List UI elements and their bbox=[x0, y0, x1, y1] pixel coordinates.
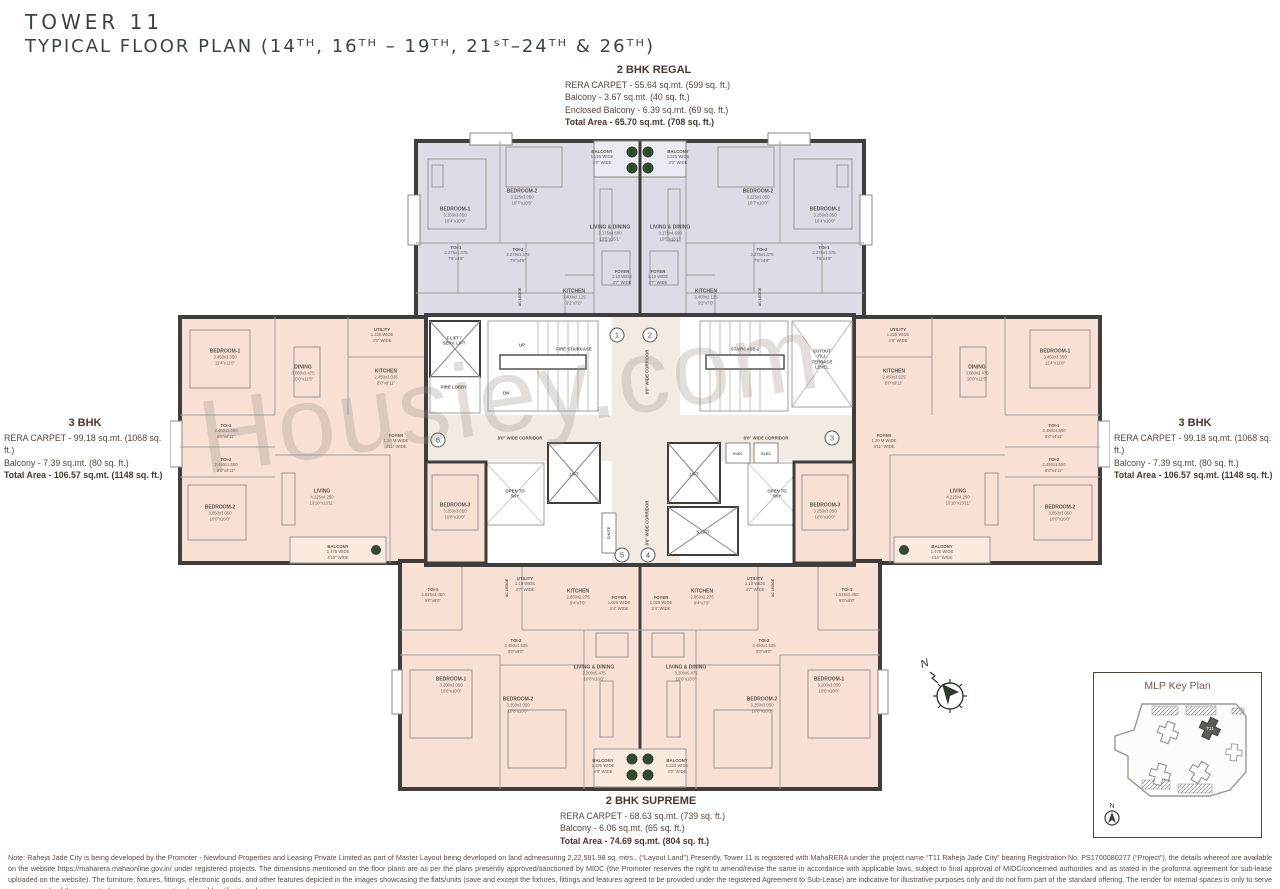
room-name: FOYER bbox=[608, 595, 631, 600]
room-dimensions: 3.250x3.050 10'8"x10'0" bbox=[747, 703, 778, 714]
room-dimensions: 3.250x3.050 10'8"x10'0" bbox=[503, 703, 534, 714]
room-dimensions: 3.450x3.350 11'4"x11'0" bbox=[210, 355, 241, 366]
room-dimensions: 3.150x3.050 10'4"x10'0" bbox=[810, 213, 841, 224]
room-dimensions: 3.060x3.475 10'0"x11'5" bbox=[965, 371, 988, 382]
room-name: 8'0" WIDE CORRIDOR bbox=[644, 350, 649, 395]
room-dimensions: 1.20 M WIDE 3'11" WIDE bbox=[872, 438, 897, 449]
room-name: LIVING bbox=[946, 489, 971, 495]
room-label: TOI-22.275x1.375 7'6"x4'6" bbox=[750, 247, 773, 263]
room-dimensions: 1.10 WIDE 3'7" WIDE bbox=[648, 274, 668, 285]
disclaimer-note: Note: Raheja Jade City is being develope… bbox=[8, 852, 1272, 889]
room-name: FOYER bbox=[872, 433, 897, 438]
room-dimensions: 2.275x1.375 7'6"x4'6" bbox=[750, 252, 773, 263]
spec-total: Total Area - 106.57 sq.mt. (1148 sq. ft.… bbox=[4, 469, 166, 482]
room-name: BEDROOM-2 bbox=[507, 189, 538, 195]
room-dimensions: 2.450x3.025 8'0"x9'11" bbox=[882, 375, 905, 386]
room-name: KITCHEN bbox=[694, 289, 717, 295]
room-name: LIVING & DINING bbox=[574, 665, 615, 671]
room-name: BEDROOM-1 bbox=[210, 349, 241, 355]
unit-spec-supreme: 2 BHK SUPREME RERA CARPET - 68.63 sq.mt.… bbox=[560, 795, 742, 847]
room-dimensions: 1.525x2.450 5'0"x8'0" bbox=[421, 592, 444, 603]
room-dimensions: 3.050x3.050 10'0"x10'0" bbox=[1045, 511, 1076, 522]
room-label: LIVING4.225x4.250 13'10"x13'11" bbox=[310, 489, 335, 506]
page-title: TOWER 11 bbox=[25, 10, 163, 34]
room-name: TOI-1 bbox=[835, 587, 858, 592]
room-dimensions: 1.475 WIDE 4'10" WIDE bbox=[327, 549, 350, 560]
room-label: BEDROOM-23.225x3.050 10'7"x10'0" bbox=[743, 189, 774, 206]
room-name: AC LEDGE bbox=[771, 579, 775, 598]
room-label: BEDROOM-13.150x3.050 10'4"x10'0" bbox=[810, 207, 841, 224]
key-plan-map: T11 N bbox=[1094, 692, 1260, 830]
room-dimensions: 1.225 WIDE 4'0" WIDE bbox=[887, 332, 910, 343]
room-name: 8'0" WIDE CORRIDOR bbox=[644, 501, 649, 546]
room-name: BEDROOM-2 bbox=[503, 697, 534, 703]
room-dimensions: 1.525x2.450 5'0"x8'0" bbox=[835, 592, 858, 603]
room-name: TOI-1 bbox=[812, 245, 835, 250]
room-name: KITCHEN bbox=[562, 289, 585, 295]
room-label: TOI-12.450x1.500 8'0"x4'11" bbox=[1042, 423, 1065, 439]
plan-label: S.LIFT bbox=[696, 529, 709, 534]
room-dimensions: 1.225 WIDE 4'0" WIDE bbox=[592, 763, 615, 774]
room-name: 8'0" WIDE CORRIDOR bbox=[744, 435, 789, 440]
room-name: UTILITY bbox=[887, 327, 910, 332]
room-label: BEDROOM-13.450x3.350 11'4"x11'0" bbox=[210, 349, 241, 366]
room-label: FOYER1.20 M WIDE 3'11" WIDE bbox=[384, 433, 409, 449]
room-name: KITCHEN bbox=[566, 589, 589, 595]
plan-label: FIRE LOBBY bbox=[441, 384, 467, 389]
room-name: BEDROOM-1 bbox=[436, 677, 467, 683]
room-dimensions: 2.450x1.525 8'0"x5'0" bbox=[504, 643, 527, 654]
corridor-node-number: 5 bbox=[615, 548, 630, 563]
room-dimensions: 3.175x4.600 10'5"x15'1" bbox=[650, 231, 691, 242]
room-name: DN bbox=[503, 390, 509, 395]
room-dimensions: 2.850x2.275 9'4"x7'5" bbox=[566, 595, 589, 606]
room-dimensions: 1.225 WIDE 4'0" WIDE bbox=[666, 763, 689, 774]
corridor-node-number: 6 bbox=[431, 433, 446, 448]
room-name: LIVING bbox=[310, 489, 335, 495]
room-name: LIFT bbox=[689, 471, 698, 476]
room-name: ELEC bbox=[733, 452, 743, 456]
room-name: FIRE STAIRCASE bbox=[556, 346, 592, 351]
room-name: BEDROOM-1 bbox=[810, 207, 841, 213]
room-dimensions: 3.250x3.050 10'8"x10'0" bbox=[440, 509, 471, 520]
room-dimensions: 3.400x2.125 9'2"x7'0" bbox=[694, 295, 717, 306]
room-name: AC LEDGE bbox=[505, 579, 509, 598]
spec-line: RERA CARPET - 99.18 sq.mt. (1068 sq. ft.… bbox=[1114, 432, 1276, 457]
key-plan-compass-n: N bbox=[1109, 803, 1114, 810]
room-dimensions: 2.850x2.275 9'4"x7'5" bbox=[690, 595, 713, 606]
spec-line: Balcony - 7.39 sq.mt. (80 sq. ft.) bbox=[4, 457, 166, 470]
room-dimensions: 1.225 WIDE 4'0" WIDE bbox=[591, 154, 614, 165]
room-dimensions: 3.200x3.050 10'6"x10'0" bbox=[814, 683, 845, 694]
room-label: LIVING & DINING3.175x4.600 10'5"x15'1" bbox=[590, 225, 631, 242]
room-name: TOI-2 bbox=[506, 247, 529, 252]
room-label: TOI-22.275x1.375 7'6"x4'6" bbox=[506, 247, 529, 263]
room-name: OPEN TO SKY bbox=[767, 489, 786, 500]
room-name: BEDROOM-2 bbox=[743, 189, 774, 195]
room-name: TOI-1 bbox=[421, 587, 444, 592]
plan-label: AC LEDGE bbox=[771, 579, 775, 598]
room-name: FIRE LOBBY bbox=[441, 384, 467, 389]
room-label: BEDROOM-23.250x3.050 10'8"x10'0" bbox=[747, 697, 778, 714]
plan-label: AC LEDGE bbox=[518, 288, 522, 307]
room-name: ELEC bbox=[761, 452, 771, 456]
room-label: BEDROOM-23.050x3.050 10'0"x10'0" bbox=[205, 505, 236, 522]
mlp-key-plan: MLP Key Plan T11 N bbox=[1093, 672, 1262, 838]
room-label: KITCHEN3.400x2.125 9'2"x7'0" bbox=[694, 289, 717, 306]
plan-label: OPEN TO SKY bbox=[767, 489, 786, 500]
corridor-node-number: 2 bbox=[643, 328, 658, 343]
room-name: BEDROOM-1 bbox=[440, 207, 471, 213]
room-label: UTILITY1.10 WIDE 3'7" WIDE bbox=[745, 576, 765, 592]
room-name: LIFT bbox=[569, 471, 578, 476]
room-dimensions: 2.275x1.375 7'6"x4'6" bbox=[444, 250, 467, 261]
room-dimensions: 3.225x3.050 10'7"x10'0" bbox=[507, 195, 538, 206]
room-label: BEDROOM-13.150x3.050 10'4"x10'0" bbox=[440, 207, 471, 224]
room-dimensions: 2.450x1.500 8'0"x4'11" bbox=[1042, 428, 1065, 439]
room-label: BEDROOM-13.200x3.050 10'6"x10'0" bbox=[436, 677, 467, 694]
unit-name: 3 BHK bbox=[4, 417, 166, 430]
room-name: F.LIFT / SERV. LIFT bbox=[443, 336, 466, 347]
room-label: BEDROOM-33.250x3.050 10'8"x10'0" bbox=[440, 503, 471, 520]
room-name: BEDROOM-3 bbox=[810, 503, 841, 509]
room-label: LIVING4.225x4.250 13'10"x13'11" bbox=[946, 489, 971, 506]
room-dimensions: 3.200x5.475 10'6"x18'0" bbox=[666, 671, 707, 682]
room-dimensions: 3.175x4.600 10'5"x15'1" bbox=[590, 231, 631, 242]
room-label: TOI-12.450x1.500 8'0"x4'11" bbox=[214, 423, 237, 439]
room-label: KITCHEN2.850x2.275 9'4"x7'5" bbox=[690, 589, 713, 606]
room-label: BALCONY1.475 WIDE 4'10" WIDE bbox=[327, 544, 350, 560]
room-label: FOYER1.025 WIDE 3'4" WIDE bbox=[608, 595, 631, 611]
room-label: LIVING & DINING3.200x5.475 10'6"x18'0" bbox=[574, 665, 615, 682]
plan-label: 8'0" WIDE CORRIDOR bbox=[644, 501, 649, 546]
room-label: UTILITY1.225 WIDE 4'0" WIDE bbox=[887, 327, 910, 343]
plan-label: DN bbox=[503, 390, 509, 395]
room-label: BALCONY1.225 WIDE 4'0" WIDE bbox=[667, 149, 690, 165]
plan-label: 8'0" WIDE CORRIDOR bbox=[644, 350, 649, 395]
plan-label: CHUTE bbox=[607, 527, 611, 539]
room-label: KITCHEN2.450x3.025 8'0"x9'11" bbox=[882, 369, 905, 386]
room-dimensions: 1.10 WIDE 3'7" WIDE bbox=[745, 581, 765, 592]
room-label: BALCONY1.475 WIDE 4'10" WIDE bbox=[931, 544, 954, 560]
corridor-node-number: 4 bbox=[641, 548, 656, 563]
unit-spec-3bhk-right: 3 BHK RERA CARPET - 99.18 sq.mt. (1068 s… bbox=[1114, 417, 1276, 482]
room-name: KITCHEN bbox=[374, 369, 397, 375]
room-label: FOYER1.10 WIDE 3'7" WIDE bbox=[612, 269, 632, 285]
room-name: AC LEDGE bbox=[518, 288, 522, 307]
room-label: UTILITY1.10 WIDE 3'7" WIDE bbox=[515, 576, 535, 592]
room-name: TOI-1 bbox=[1042, 423, 1065, 428]
room-dimensions: 2.450x1.500 8'0"x4'11" bbox=[214, 428, 237, 439]
room-dimensions: 3.225x3.050 10'7"x10'0" bbox=[743, 195, 774, 206]
svg-text:N: N bbox=[919, 657, 931, 671]
plan-label: ELEC bbox=[733, 452, 743, 456]
room-name: OPEN TO SKY bbox=[505, 489, 524, 500]
room-name: BEDROOM-1 bbox=[814, 677, 845, 683]
room-label: DINING3.060x3.475 10'0"x11'5" bbox=[965, 365, 988, 382]
room-label: UTILITY1.225 WIDE 4'0" WIDE bbox=[371, 327, 394, 343]
room-dimensions: 3.450x3.350 11'4"x11'0" bbox=[1040, 355, 1071, 366]
room-name: LIVING & DINING bbox=[590, 225, 631, 231]
tower-t11-label: T11 bbox=[1206, 726, 1214, 731]
plan-label: STAIRCASE-2 bbox=[731, 346, 759, 351]
room-name: S.LIFT bbox=[696, 529, 709, 534]
room-label: LIVING & DINING3.175x4.600 10'5"x15'1" bbox=[650, 225, 691, 242]
room-name: BALCONY bbox=[327, 544, 350, 549]
room-name: FOYER bbox=[648, 269, 668, 274]
plan-label: F.LIFT / SERV. LIFT bbox=[443, 336, 466, 347]
room-label: KITCHEN2.450x3.025 8'0"x9'11" bbox=[374, 369, 397, 386]
spec-line: RERA CARPET - 99.18 sq.mt. (1068 sq. ft.… bbox=[4, 432, 166, 457]
room-name: UP bbox=[519, 342, 525, 347]
spec-line: Balcony - 7.39 sq.mt. (80 sq. ft.) bbox=[1114, 457, 1276, 470]
north-compass-icon: N bbox=[912, 652, 980, 720]
spec-line: RERA CARPET - 68.63 sq.mt. (739 sq. ft.) bbox=[560, 810, 742, 823]
room-name: TOI-1 bbox=[214, 423, 237, 428]
room-label: TOI-12.275x1.375 7'6"x4'6" bbox=[444, 245, 467, 261]
room-dimensions: 1.475 WIDE 4'10" WIDE bbox=[931, 549, 954, 560]
room-dimensions: 3.200x5.475 10'6"x18'0" bbox=[574, 671, 615, 682]
room-dimensions: 1.10 WIDE 3'7" WIDE bbox=[612, 274, 632, 285]
room-label: KITCHEN2.850x2.275 9'4"x7'5" bbox=[566, 589, 589, 606]
room-dimensions: 2.275x1.375 7'6"x4'6" bbox=[812, 250, 835, 261]
spec-line: Enclosed Balcony - 6.39 sq.mt. (69 sq. f… bbox=[565, 104, 743, 117]
plan-label: FIRE STAIRCASE bbox=[556, 346, 592, 351]
room-label: BEDROOM-13.450x3.350 11'4"x11'0" bbox=[1040, 349, 1071, 366]
page-subtitle: TYPICAL FLOOR PLAN (14ᵀᴴ, 16ᵀᴴ – 19ᵀᴴ, 2… bbox=[25, 36, 655, 57]
room-label: BALCONY1.225 WIDE 4'0" WIDE bbox=[666, 758, 689, 774]
room-name: BALCONY bbox=[591, 149, 614, 154]
room-label: BEDROOM-23.250x3.050 10'8"x10'0" bbox=[503, 697, 534, 714]
room-dimensions: 3.200x3.050 10'6"x10'0" bbox=[436, 683, 467, 694]
key-plan-title: MLP Key Plan bbox=[1094, 680, 1261, 692]
room-name: TOI-2 bbox=[214, 457, 237, 462]
room-name: FOYER bbox=[650, 595, 673, 600]
room-name: BALCONY bbox=[592, 758, 615, 763]
room-label: TOI-12.275x1.375 7'6"x4'6" bbox=[812, 245, 835, 261]
room-name: AC LEDGE bbox=[758, 288, 762, 307]
room-name: KITCHEN bbox=[882, 369, 905, 375]
unit-spec-regal: 2 BHK REGAL RERA CARPET - 55.64 sq.mt. (… bbox=[565, 64, 743, 129]
room-name: STAIRCASE-2 bbox=[731, 346, 759, 351]
room-name: FOYER bbox=[384, 433, 409, 438]
room-name: BALCONY bbox=[667, 149, 690, 154]
plan-label: UP bbox=[519, 342, 525, 347]
room-dimensions: 1.225 WIDE 4'0" WIDE bbox=[371, 332, 394, 343]
room-label: BALCONY1.225 WIDE 4'0" WIDE bbox=[592, 758, 615, 774]
room-name: BALCONY bbox=[931, 544, 954, 549]
unit-name: 2 BHK SUPREME bbox=[560, 795, 742, 808]
room-name: KITCHEN bbox=[690, 589, 713, 595]
room-label: LIVING & DINING3.200x5.475 10'6"x18'0" bbox=[666, 665, 707, 682]
corridor-node-number: 3 bbox=[825, 431, 840, 446]
spec-line: Balcony - 6.06 sq.mt. (65 sq. ft.) bbox=[560, 822, 742, 835]
plan-label: 8'0" WIDE CORRIDOR bbox=[498, 435, 543, 440]
room-dimensions: 2.275x1.375 7'6"x4'6" bbox=[506, 252, 529, 263]
room-label: BEDROOM-23.225x3.050 10'7"x10'0" bbox=[507, 189, 538, 206]
room-label: BEDROOM-13.200x3.050 10'6"x10'0" bbox=[814, 677, 845, 694]
room-dimensions: 1.025 WIDE 3'4" WIDE bbox=[650, 600, 673, 611]
room-dimensions: 1.025 WIDE 3'4" WIDE bbox=[608, 600, 631, 611]
room-dimensions: 2.450x1.500 8'0"x4'11" bbox=[1042, 462, 1065, 473]
room-name: DINING bbox=[965, 365, 988, 371]
room-dimensions: 2.450x1.500 8'0"x4'11" bbox=[214, 462, 237, 473]
plan-label: LIFT bbox=[569, 471, 578, 476]
plan-label: ELEC bbox=[761, 452, 771, 456]
spec-line: Balcony - 3.67 sq.mt. (40 sq. ft.) bbox=[565, 91, 743, 104]
plan-label: AC LEDGE bbox=[505, 579, 509, 598]
spec-total: Total Area - 74.69 sq.mt. (804 sq. ft.) bbox=[560, 835, 742, 848]
room-name: DINING bbox=[291, 365, 314, 371]
room-name: TOI-2 bbox=[750, 247, 773, 252]
spec-line: RERA CARPET - 55.64 sq.mt. (599 sq. ft.) bbox=[565, 79, 743, 92]
room-label: BEDROOM-33.250x3.050 10'8"x10'0" bbox=[810, 503, 841, 520]
unit-name: 3 BHK bbox=[1114, 417, 1276, 430]
room-dimensions: 4.225x4.250 13'10"x13'11" bbox=[946, 495, 971, 506]
room-dimensions: 3.150x3.050 10'4"x10'0" bbox=[440, 213, 471, 224]
unit-spec-3bhk-left: 3 BHK RERA CARPET - 99.18 sq.mt. (1068 s… bbox=[4, 417, 166, 482]
plan-label: AC LEDGE bbox=[758, 288, 762, 307]
room-label: TOI-11.525x2.450 5'0"x8'0" bbox=[835, 587, 858, 603]
room-label: FOYER1.025 WIDE 3'4" WIDE bbox=[650, 595, 673, 611]
room-label: TOI-22.450x1.500 8'0"x4'11" bbox=[1042, 457, 1065, 473]
room-label: DINING3.060x3.475 10'0"x11'5" bbox=[291, 365, 314, 382]
spec-total: Total Area - 106.57 sq.mt. (1148 sq. ft.… bbox=[1114, 469, 1276, 482]
room-name: LIVING & DINING bbox=[666, 665, 707, 671]
plan-label: LIFT bbox=[689, 471, 698, 476]
room-dimensions: 1.20 M WIDE 3'11" WIDE bbox=[384, 438, 409, 449]
room-dimensions: 1.10 WIDE 3'7" WIDE bbox=[515, 581, 535, 592]
unit-name: 2 BHK REGAL bbox=[565, 64, 743, 77]
room-name: TOI-2 bbox=[1042, 457, 1065, 462]
room-dimensions: 2.450x3.025 8'0"x9'11" bbox=[374, 375, 397, 386]
room-label: TOI-22.450x1.525 8'0"x5'0" bbox=[752, 638, 775, 654]
corridor-node-number: 1 bbox=[610, 328, 625, 343]
room-dimensions: 2.450x1.525 8'0"x5'0" bbox=[752, 643, 775, 654]
plan-label: CUTOUT TILL TERRACE LEVEL bbox=[812, 348, 833, 369]
room-name: 8'0" WIDE CORRIDOR bbox=[498, 435, 543, 440]
room-name: TOI-1 bbox=[444, 245, 467, 250]
room-name: BEDROOM-3 bbox=[440, 503, 471, 509]
room-name: CUTOUT TILL TERRACE LEVEL bbox=[812, 348, 833, 369]
room-dimensions: 4.225x4.250 13'10"x13'11" bbox=[310, 495, 335, 506]
room-dimensions: 3.250x3.050 10'8"x10'0" bbox=[810, 509, 841, 520]
room-name: TOI-2 bbox=[752, 638, 775, 643]
room-name: UTILITY bbox=[515, 576, 535, 581]
room-name: CHUTE bbox=[607, 527, 611, 539]
room-label: TOI-22.450x1.525 8'0"x5'0" bbox=[504, 638, 527, 654]
room-dimensions: 1.225 WIDE 4'0" WIDE bbox=[667, 154, 690, 165]
room-name: UTILITY bbox=[371, 327, 394, 332]
room-name: BEDROOM-2 bbox=[747, 697, 778, 703]
room-name: FOYER bbox=[612, 269, 632, 274]
plan-label: 8'0" WIDE CORRIDOR bbox=[744, 435, 789, 440]
room-name: BEDROOM-1 bbox=[1040, 349, 1071, 355]
room-name: BALCONY bbox=[666, 758, 689, 763]
room-name: TOI-2 bbox=[504, 638, 527, 643]
room-name: UTILITY bbox=[745, 576, 765, 581]
room-dimensions: 3.400x2.125 9'2"x7'0" bbox=[562, 295, 585, 306]
room-label: BEDROOM-23.050x3.050 10'0"x10'0" bbox=[1045, 505, 1076, 522]
room-dimensions: 3.050x3.050 10'0"x10'0" bbox=[205, 511, 236, 522]
room-label: TOI-11.525x2.450 5'0"x8'0" bbox=[421, 587, 444, 603]
room-label: KITCHEN3.400x2.125 9'2"x7'0" bbox=[562, 289, 585, 306]
room-dimensions: 3.060x3.475 10'0"x11'5" bbox=[291, 371, 314, 382]
floor-plan-page: TOWER 11 TYPICAL FLOOR PLAN (14ᵀᴴ, 16ᵀᴴ … bbox=[0, 0, 1280, 889]
room-label: BALCONY1.225 WIDE 4'0" WIDE bbox=[591, 149, 614, 165]
room-label: FOYER1.10 WIDE 3'7" WIDE bbox=[648, 269, 668, 285]
room-name: BEDROOM-2 bbox=[205, 505, 236, 511]
room-label: TOI-22.450x1.500 8'0"x4'11" bbox=[214, 457, 237, 473]
room-name: BEDROOM-2 bbox=[1045, 505, 1076, 511]
room-label: FOYER1.20 M WIDE 3'11" WIDE bbox=[872, 433, 897, 449]
room-name: LIVING & DINING bbox=[650, 225, 691, 231]
plan-label: OPEN TO SKY bbox=[505, 489, 524, 500]
